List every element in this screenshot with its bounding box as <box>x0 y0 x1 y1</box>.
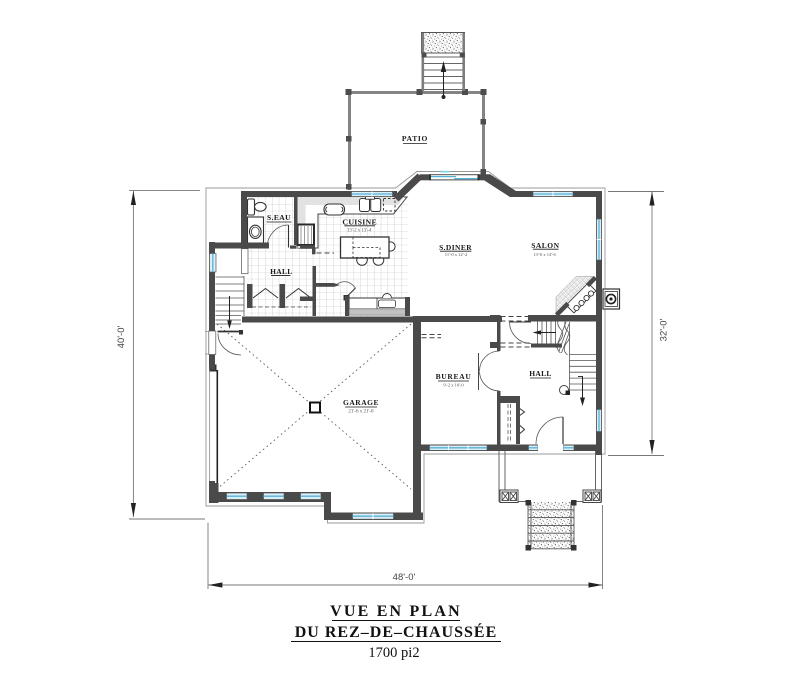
svg-text:PATIO: PATIO <box>402 134 428 143</box>
svg-text:HALL: HALL <box>529 369 551 378</box>
svg-text:32'-0': 32'-0' <box>659 319 670 342</box>
svg-text:21'-6 x 21'-6: 21'-6 x 21'-6 <box>348 410 374 415</box>
svg-text:48'-0': 48'-0' <box>393 572 416 583</box>
svg-text:DU REZ–DE–CHAUSSÉE: DU REZ–DE–CHAUSSÉE <box>295 622 497 641</box>
svg-text:11'-0 x 12'-2: 11'-0 x 12'-2 <box>445 252 467 257</box>
svg-text:40'-0': 40'-0' <box>116 326 127 349</box>
svg-text:S.DINER: S.DINER <box>439 243 472 252</box>
svg-text:GARAGE: GARAGE <box>343 398 379 407</box>
svg-text:13'-2 x 13'-4: 13'-2 x 13'-4 <box>347 228 372 233</box>
svg-text:13'-0 x 14'-6: 13'-0 x 14'-6 <box>533 252 556 257</box>
svg-text:S.EAU: S.EAU <box>267 213 291 222</box>
svg-text:HALL: HALL <box>270 267 292 276</box>
svg-text:9'-2 x 10'-0: 9'-2 x 10'-0 <box>443 383 464 388</box>
svg-text:CUISINE: CUISINE <box>342 218 377 227</box>
svg-text:BUREAU: BUREAU <box>436 372 472 381</box>
svg-text:1700 pi2: 1700 pi2 <box>368 645 419 661</box>
svg-text:SALON: SALON <box>531 241 559 250</box>
svg-text:VUE EN PLAN: VUE EN PLAN <box>330 603 462 620</box>
